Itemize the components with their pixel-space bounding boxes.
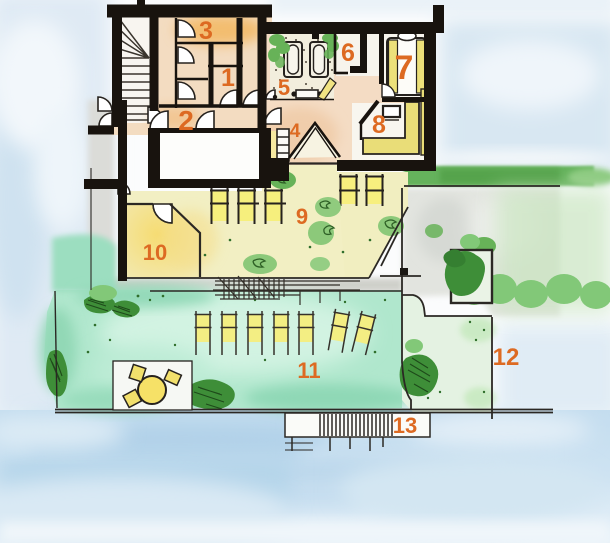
svg-text:4: 4 <box>290 121 301 142</box>
svg-text:2: 2 <box>178 105 194 136</box>
svg-text:6: 6 <box>341 39 355 67</box>
svg-text:12: 12 <box>493 344 520 371</box>
svg-text:3: 3 <box>199 17 213 45</box>
svg-text:7: 7 <box>395 49 414 87</box>
svg-text:13: 13 <box>393 413 417 438</box>
svg-text:10: 10 <box>143 240 167 265</box>
svg-text:11: 11 <box>297 358 320 383</box>
svg-text:1: 1 <box>221 64 235 92</box>
svg-text:5: 5 <box>278 75 290 100</box>
svg-text:8: 8 <box>372 111 386 139</box>
svg-text:9: 9 <box>296 204 308 229</box>
